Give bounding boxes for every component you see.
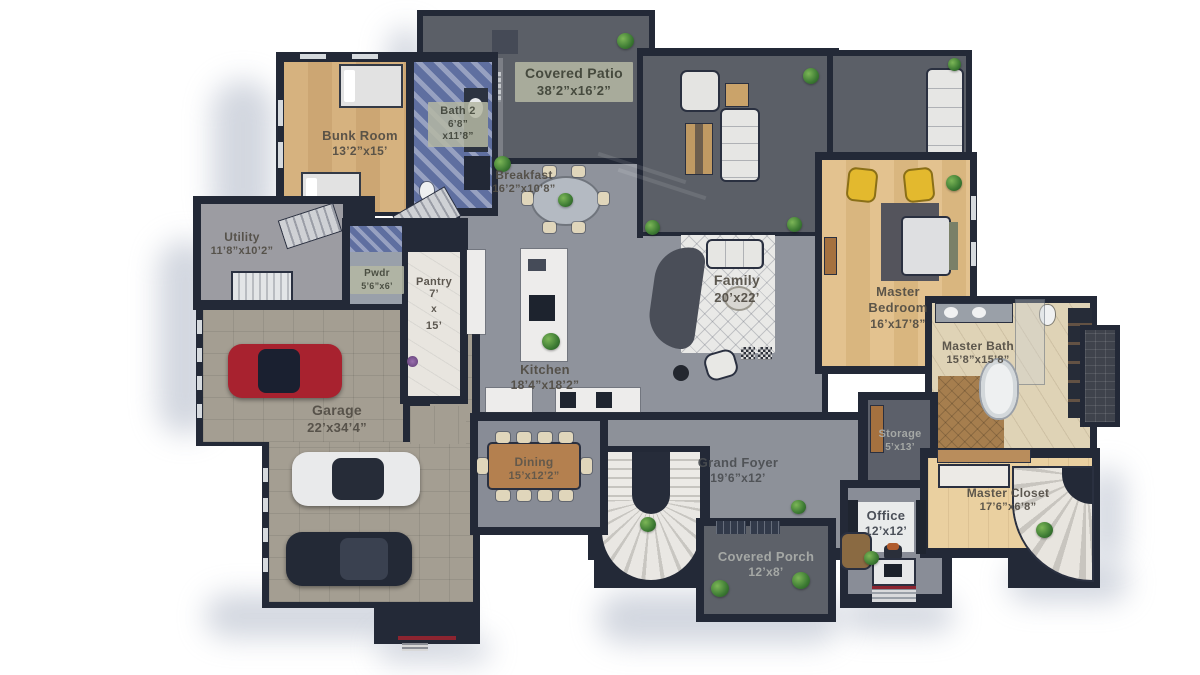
master-bath-label: Master Bath 15’8”x15’8” (932, 339, 1024, 368)
room-name: 7’ (412, 288, 456, 302)
appliance (560, 392, 576, 408)
sink (972, 307, 986, 318)
room-dims: 13’2”x15’ (312, 144, 408, 159)
floor-plan-canvas: Covered Patio 38’2”x16’2” Bunk Room 13’2… (0, 0, 1200, 675)
breakfast-chair (598, 192, 609, 205)
room-dims: 15’x12’2” (488, 470, 580, 484)
side-table (673, 365, 689, 381)
room-name: Covered Porch (706, 549, 826, 565)
storage-label: Storage 5’x13’ (866, 428, 934, 454)
bunk-room-label: Bunk Room 13’2”x15’ (312, 128, 408, 159)
room-name: Covered Patio (519, 65, 629, 83)
room-dims: 11’8”x10’2” (196, 245, 288, 259)
room-dims: 12’x12’ (858, 524, 914, 539)
plant-icon (640, 517, 656, 532)
front-door (750, 521, 780, 534)
window (971, 242, 976, 266)
window (197, 320, 202, 334)
closet-island (940, 466, 1008, 486)
closet-dresser (938, 450, 1030, 462)
window (197, 376, 202, 390)
plant-icon (617, 33, 634, 49)
room-dims: 19’6”x12’ (690, 471, 786, 486)
dining-chair (517, 490, 531, 501)
dining-chair (538, 432, 552, 443)
window (263, 468, 268, 482)
dining-chair (559, 432, 573, 443)
dining-chair (538, 490, 552, 501)
window (300, 54, 326, 59)
pantry-dims-len: 15’ (412, 320, 456, 334)
window (263, 498, 268, 512)
plant-icon (645, 220, 660, 235)
kitchen-label: Kitchen 18’4”x18’2” (498, 362, 592, 393)
covered-porch-label: Covered Porch 12’x8’ (706, 549, 826, 580)
dining-chair (496, 490, 510, 501)
room-name: Garage (292, 402, 382, 420)
window (197, 404, 202, 418)
washer-dryer (233, 273, 291, 302)
room-dims: 15’ (412, 320, 456, 334)
pantry-dims-x: x (412, 304, 456, 317)
room-name: Bath 2 (432, 105, 484, 119)
room-name: Pwdr (352, 268, 402, 281)
room-name: Kitchen (498, 362, 592, 378)
laptop-icon (884, 564, 902, 577)
room-dims: 22’x34’4” (292, 420, 382, 436)
room-name: Family (694, 272, 780, 290)
pwdr-tile (350, 226, 402, 252)
room-name: Storage (866, 428, 934, 442)
plant-icon (864, 551, 879, 565)
patio-table-runner (695, 124, 703, 174)
window (263, 528, 268, 542)
patio-side-table (726, 84, 748, 106)
window (278, 100, 283, 126)
room-name: Master Closet (956, 486, 1060, 501)
room-dims: 6’8” (432, 119, 484, 132)
window (278, 142, 283, 168)
window (352, 54, 378, 59)
room-name: Master Bath (932, 339, 1024, 354)
appliance (596, 392, 612, 408)
ottoman (741, 347, 755, 360)
dining-chair (477, 458, 488, 474)
chimney (492, 30, 518, 54)
mudroom-floor-south (410, 406, 466, 444)
dining-label: Dining 15’x12’2” (488, 455, 580, 484)
room-dims: 18’4”x18’2” (498, 378, 592, 393)
room-name: Grand Foyer (690, 455, 786, 471)
room-dims: 17’6”x6’8” (956, 501, 1060, 515)
stair-inner-landing (632, 452, 670, 514)
kitchen-wall-counter (467, 250, 485, 334)
plant-icon (1036, 522, 1053, 538)
master-bed (903, 218, 949, 274)
covered-patio-label: Covered Patio 38’2”x16’2” (515, 62, 633, 102)
room-name: Utility (196, 230, 288, 245)
room-dims: 15’8”x15’8” (932, 354, 1024, 368)
room-dims: x (412, 304, 456, 317)
window (197, 348, 202, 362)
desk-chair-cushion (887, 543, 899, 550)
utility-label: Utility 11’8”x10’2” (196, 230, 288, 259)
office-label: Office 12’x12’ (858, 508, 914, 539)
flowers-icon (407, 356, 418, 367)
car-white-cabin (332, 458, 384, 500)
brick-deck (1085, 330, 1115, 422)
room-dims: 12’x8’ (706, 565, 826, 580)
room-name: Office (858, 508, 914, 524)
plant-icon (791, 500, 806, 514)
island-sink (528, 259, 546, 271)
room-name: Dining (488, 455, 580, 470)
garage-label: Garage 22’x34’4” (292, 402, 382, 436)
family-label: Family 20’x22’ (694, 272, 780, 306)
dining-chair (496, 432, 510, 443)
master-closet-label: Master Closet 17’6”x6’8” (956, 486, 1060, 515)
breakfast-chair (572, 166, 585, 177)
plant-icon (787, 217, 802, 232)
bench (825, 238, 836, 274)
room-dims: 5’6”x6’ (352, 281, 402, 292)
master-bed-headboard (949, 222, 958, 270)
patio-sectional-sofa (928, 70, 962, 158)
room-name: Pantry (406, 276, 462, 290)
plant-icon (946, 175, 962, 191)
window (263, 558, 268, 572)
room-dims: 38’2”x16’2” (519, 83, 629, 99)
patio-sofa (722, 110, 758, 180)
dining-chair (517, 432, 531, 443)
bed-pillow (344, 70, 355, 102)
room-name: Breakfast (478, 168, 570, 183)
plant-icon (711, 580, 729, 597)
plant-icon (803, 68, 819, 84)
sofa (708, 241, 762, 267)
grand-foyer-label: Grand Foyer 19’6”x12’ (690, 455, 786, 486)
front-door (716, 521, 746, 534)
car-red-cabin (258, 349, 300, 393)
accent-chair-yellow (848, 169, 877, 202)
breakfast-chair (572, 222, 585, 233)
office-step (872, 590, 916, 602)
range-cooktop (529, 295, 555, 321)
garage-step (402, 643, 428, 651)
window (971, 196, 976, 220)
plant-icon (948, 58, 961, 71)
office-step (872, 586, 916, 589)
car-dark-cabin (340, 538, 388, 580)
freestanding-tub (981, 360, 1017, 418)
patio-daybed (682, 72, 718, 110)
dining-chair (581, 458, 592, 474)
dining-chair (559, 490, 573, 501)
breakfast-chair (543, 222, 556, 233)
pantry-label: 7’ (412, 288, 456, 302)
room-dims: 5’x13’ (866, 442, 934, 455)
pantry-name: Pantry (406, 276, 462, 290)
room-dims: 16’2”x10’8” (478, 183, 570, 197)
master-bedroom-label: Master Bedroom 16’x17’8” (858, 284, 938, 332)
breakfast-label: Breakfast 16’2”x10’8” (478, 168, 570, 197)
bath-2-label: Bath 2 6’8” x11’8” (428, 102, 488, 147)
bookshelf (916, 500, 926, 554)
room-dims: x11’8” (432, 131, 484, 144)
room-name: Bunk Room (312, 128, 408, 144)
accent-chair-yellow (905, 169, 934, 202)
room-dims: 20’x22’ (694, 290, 780, 306)
garage-door-strip (398, 636, 456, 640)
room-dims: 16’x17’8” (858, 317, 938, 332)
pwdr-label: Pwdr 5’6”x6’ (350, 266, 404, 294)
sink (944, 307, 958, 318)
ottoman (758, 347, 772, 360)
room-name: Master Bedroom (858, 284, 938, 317)
plant-icon (542, 333, 560, 350)
